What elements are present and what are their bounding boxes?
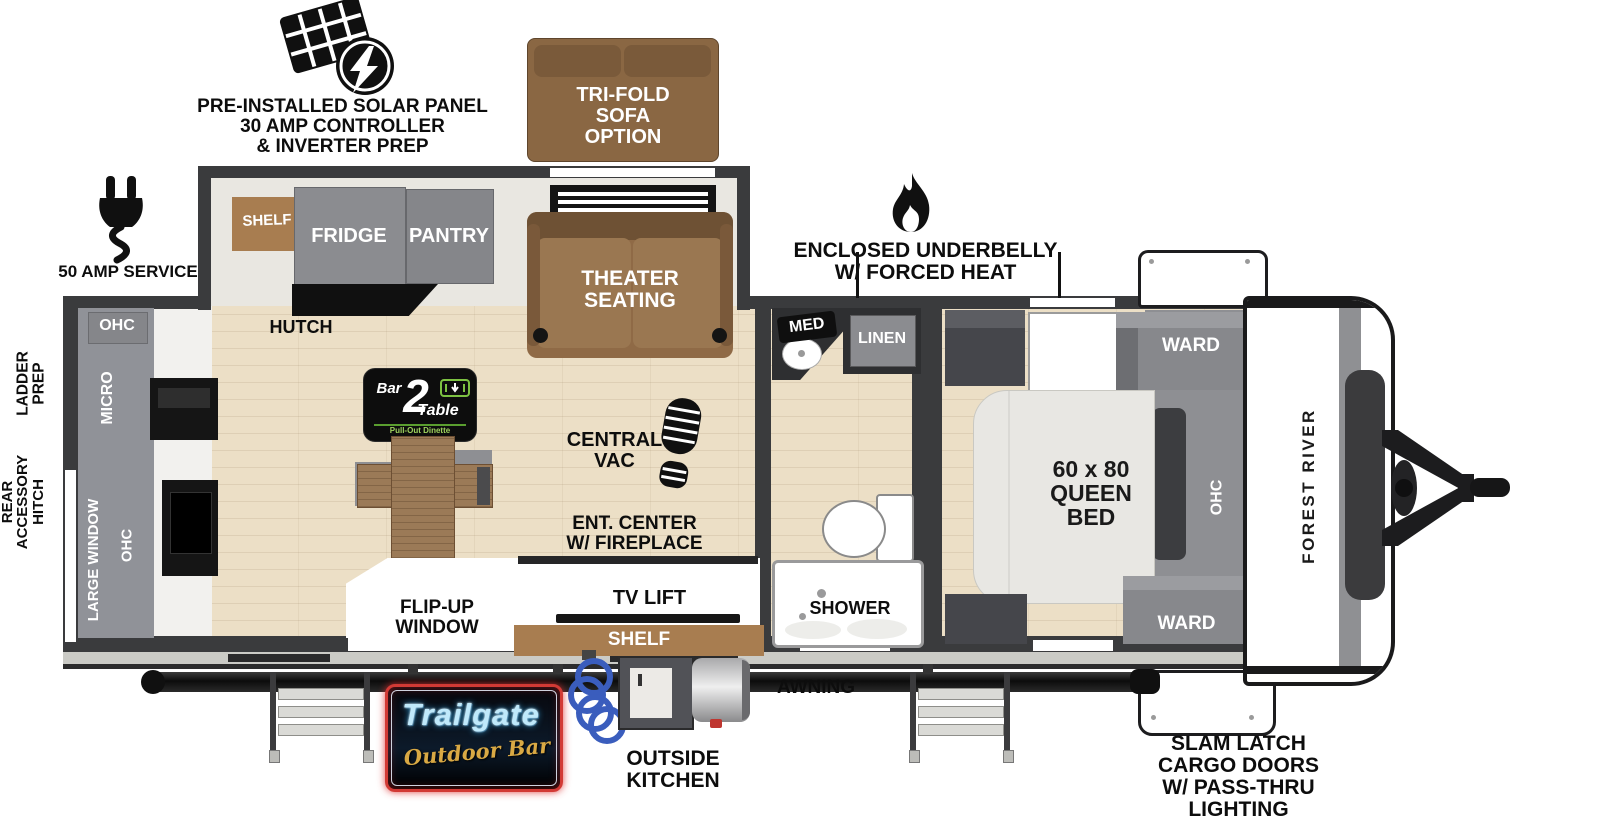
trifold-sofa-label: TRI-FOLD SOFA OPTION [528,85,718,148]
rear-accessory-hitch-label: REAR ACCESSORY HITCH [0,443,46,561]
tv [556,614,740,623]
awning-bracket [553,664,563,673]
wardrobe-top-label: WARD [1146,336,1236,356]
ent-shelf-label: SHELF [589,630,689,650]
queen-bed: 60 x 80 QUEEN BED [973,390,1155,604]
ent-shelf: SHELF [514,625,764,656]
micro-label: MICRO [100,350,130,446]
power-plug-icon [92,176,150,264]
dinette-bracket [477,467,490,505]
bedroom-window [1028,312,1120,392]
entry-steps [910,672,1010,762]
wardrobe-bottom: WARD [1123,576,1247,644]
outside-kitchen-label: OUTSIDE KITCHEN [598,748,748,792]
pillow [1152,408,1186,560]
sofa-cushion [534,45,621,77]
ohc-upper-box: OHC [88,312,148,344]
bath-sink [782,338,822,370]
sill-window-frame [228,654,330,662]
wardrobe-bottom-label: WARD [1139,614,1234,634]
hutch-label: HUTCH [246,318,356,337]
linen-cabinet: LINEN [850,315,916,367]
trailgate-logo: Trailgate Outdoor Bar [385,684,563,792]
large-window-label: LARGE WINDOW [86,477,112,643]
roof-marker [1058,252,1061,298]
footprint-icon [650,396,708,494]
awning-rail-cap [1130,669,1160,694]
ohc-upper-label: OHC [89,318,145,335]
flame-icon [888,172,934,238]
amp-service-label: 50 AMP SERVICE [52,263,204,281]
bar2table-table: Table [406,403,470,420]
tv-lift-label: TV LIFT [592,588,707,609]
slide-left-wall [198,166,211,310]
roof-marker [856,252,859,298]
sofa-cushion [624,45,711,77]
bedroom-cabinet-bottomleft [945,594,1027,644]
awning-rail-cap [141,670,165,694]
rear-window-gap [65,470,76,642]
oven [162,480,218,576]
pantry-label: PANTRY [407,226,491,247]
bar2table-table-icon [440,379,470,397]
ohc-lower-label: OHC [120,515,145,577]
bedroom-window-gap [1030,298,1115,307]
wardrobe-top: WARD [1116,312,1246,390]
kitchen-shelf-label: SHELF [232,212,303,230]
flip-window-label: FLIP-UP WINDOW [378,598,496,638]
bar2table-logo: Bar 2 Table Pull-Out Dinette [363,368,477,442]
fridge-label: FRIDGE [295,226,403,247]
toilet-bowl [822,500,886,558]
med-label: MED [777,315,837,339]
slide-window [550,185,716,215]
slam-latch-label: SLAM LATCH CARGO DOORS W/ PASS-THRU LIGH… [1136,733,1341,821]
slide-right-wall [737,166,750,310]
outside-kitchen-cabinet [618,656,694,730]
hitch [1382,418,1512,558]
bedroom-cabinet-topleft [945,310,1025,386]
linen-label: LINEN [851,331,913,348]
slide-window-gap [550,168,715,177]
ent-center-label: ENT. CENTER W/ FIREPLACE [552,514,717,554]
pantry: PANTRY [406,189,494,284]
bar2table-sub: Pull-Out Dinette [368,427,472,435]
outside-kitchen-tank [692,658,750,722]
bed-label: 60 x 80 QUEEN BED [1026,457,1156,529]
trifold-sofa: TRI-FOLD SOFA OPTION [527,38,719,162]
solar-panel-icon [272,0,404,100]
cooktop [150,378,218,440]
awning-bracket [408,664,418,673]
trailgate-name: Trailgate [388,699,554,732]
solar-panel-label: PRE-INSTALLED SOLAR PANEL 30 AMP CONTROL… [175,97,510,157]
theater-seating: THEATER SEATING [527,212,733,358]
underbelly-label: ENCLOSED UNDERBELLY W/ FORCED HEAT [768,240,1083,284]
shower: SHOWER [772,560,924,648]
flipup-window-gap [348,638,516,651]
theater-seating-label: THEATER SEATING [547,268,713,312]
awning-label: AWNING [756,678,876,698]
ladder-prep-label: LADDER PREP [16,347,59,421]
ent-center-edge [518,556,758,564]
entry-steps [270,672,370,762]
kitchen-shelf: SHELF [232,197,302,251]
forest-river-brand: FOREST RIVER [1300,370,1330,602]
bedroom-ohc-label: OHC [1210,473,1237,523]
bedroom-bottom-gap [1033,640,1113,651]
shower-label: SHOWER [787,599,913,618]
rv-floorplan: PRE-INSTALLED SOLAR PANEL 30 AMP CONTROL… [0,0,1600,831]
fridge: FRIDGE [294,187,406,286]
